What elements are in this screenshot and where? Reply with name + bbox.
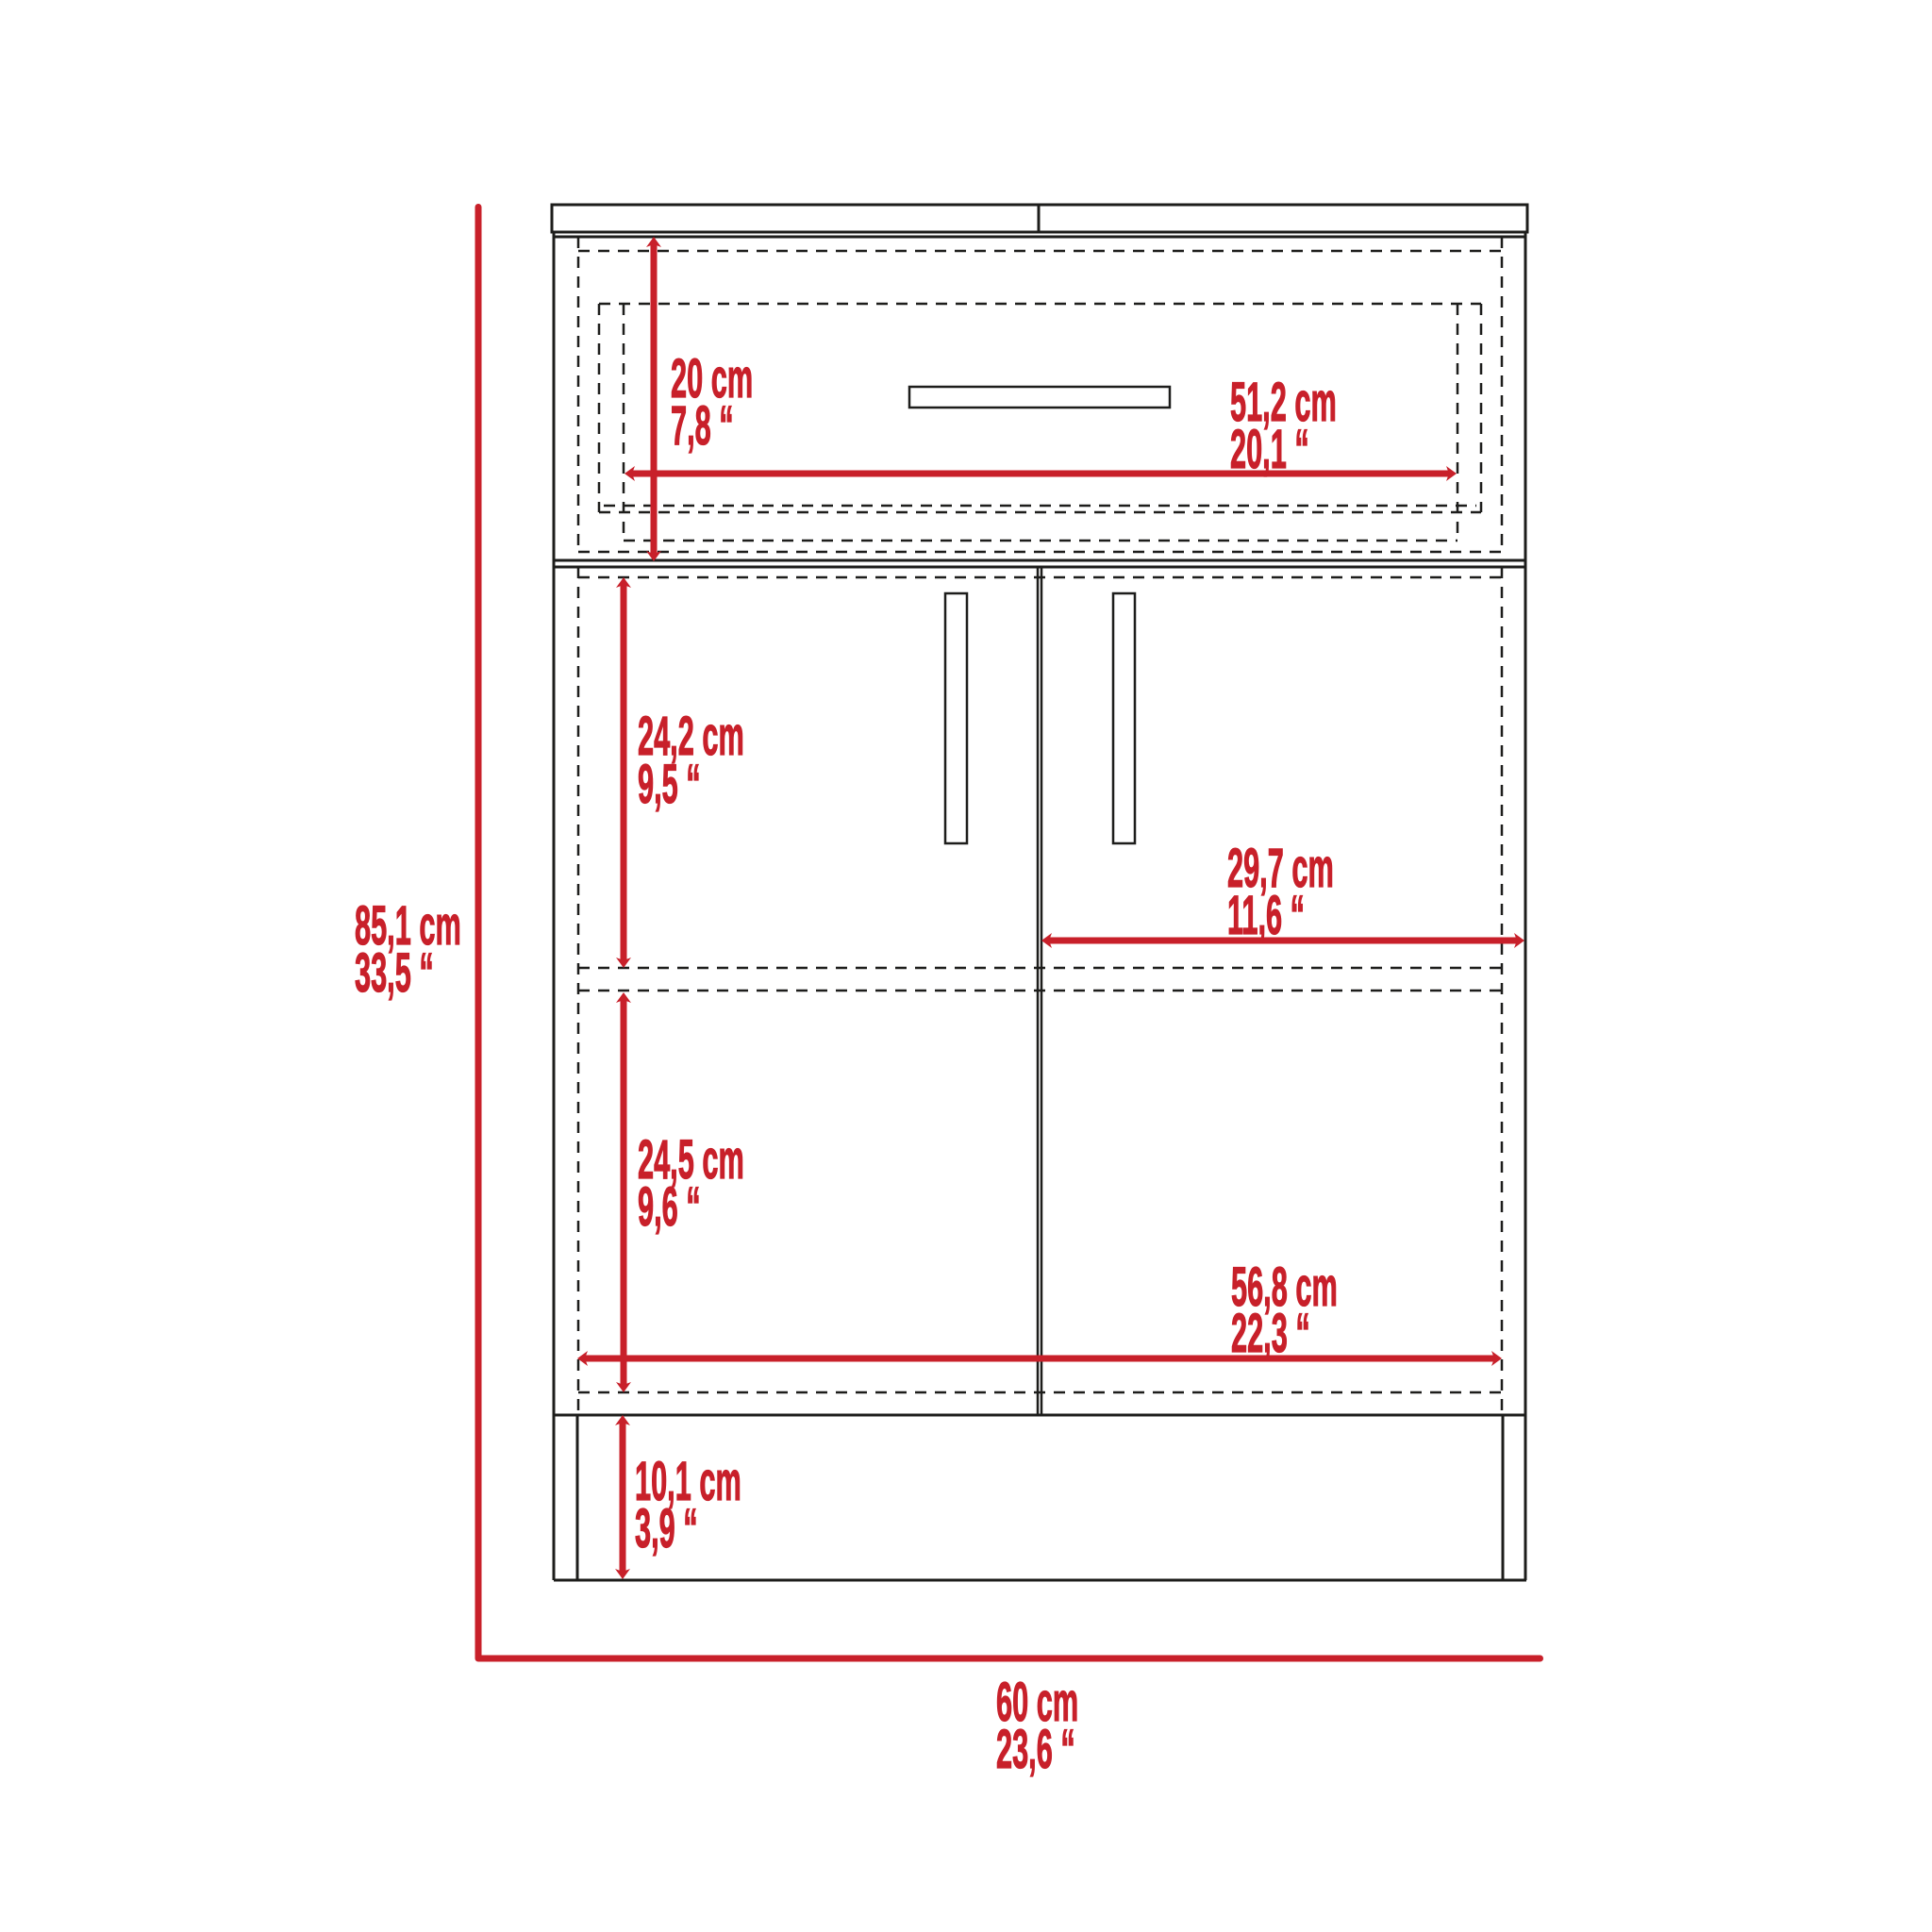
- svg-text:3,9 “: 3,9 “: [635, 1498, 698, 1559]
- svg-text:11,6 “: 11,6 “: [1227, 885, 1305, 946]
- svg-text:7,8 “: 7,8 “: [671, 395, 734, 457]
- svg-text:33,5 “: 33,5 “: [355, 942, 434, 1004]
- svg-text:22,3 “: 22,3 “: [1231, 1303, 1310, 1364]
- svg-text:9,6 “: 9,6 “: [638, 1176, 701, 1238]
- svg-text:9,5 “: 9,5 “: [638, 754, 701, 815]
- svg-text:23,6 “: 23,6 “: [996, 1719, 1075, 1780]
- svg-text:20,1 “: 20,1 “: [1230, 419, 1309, 480]
